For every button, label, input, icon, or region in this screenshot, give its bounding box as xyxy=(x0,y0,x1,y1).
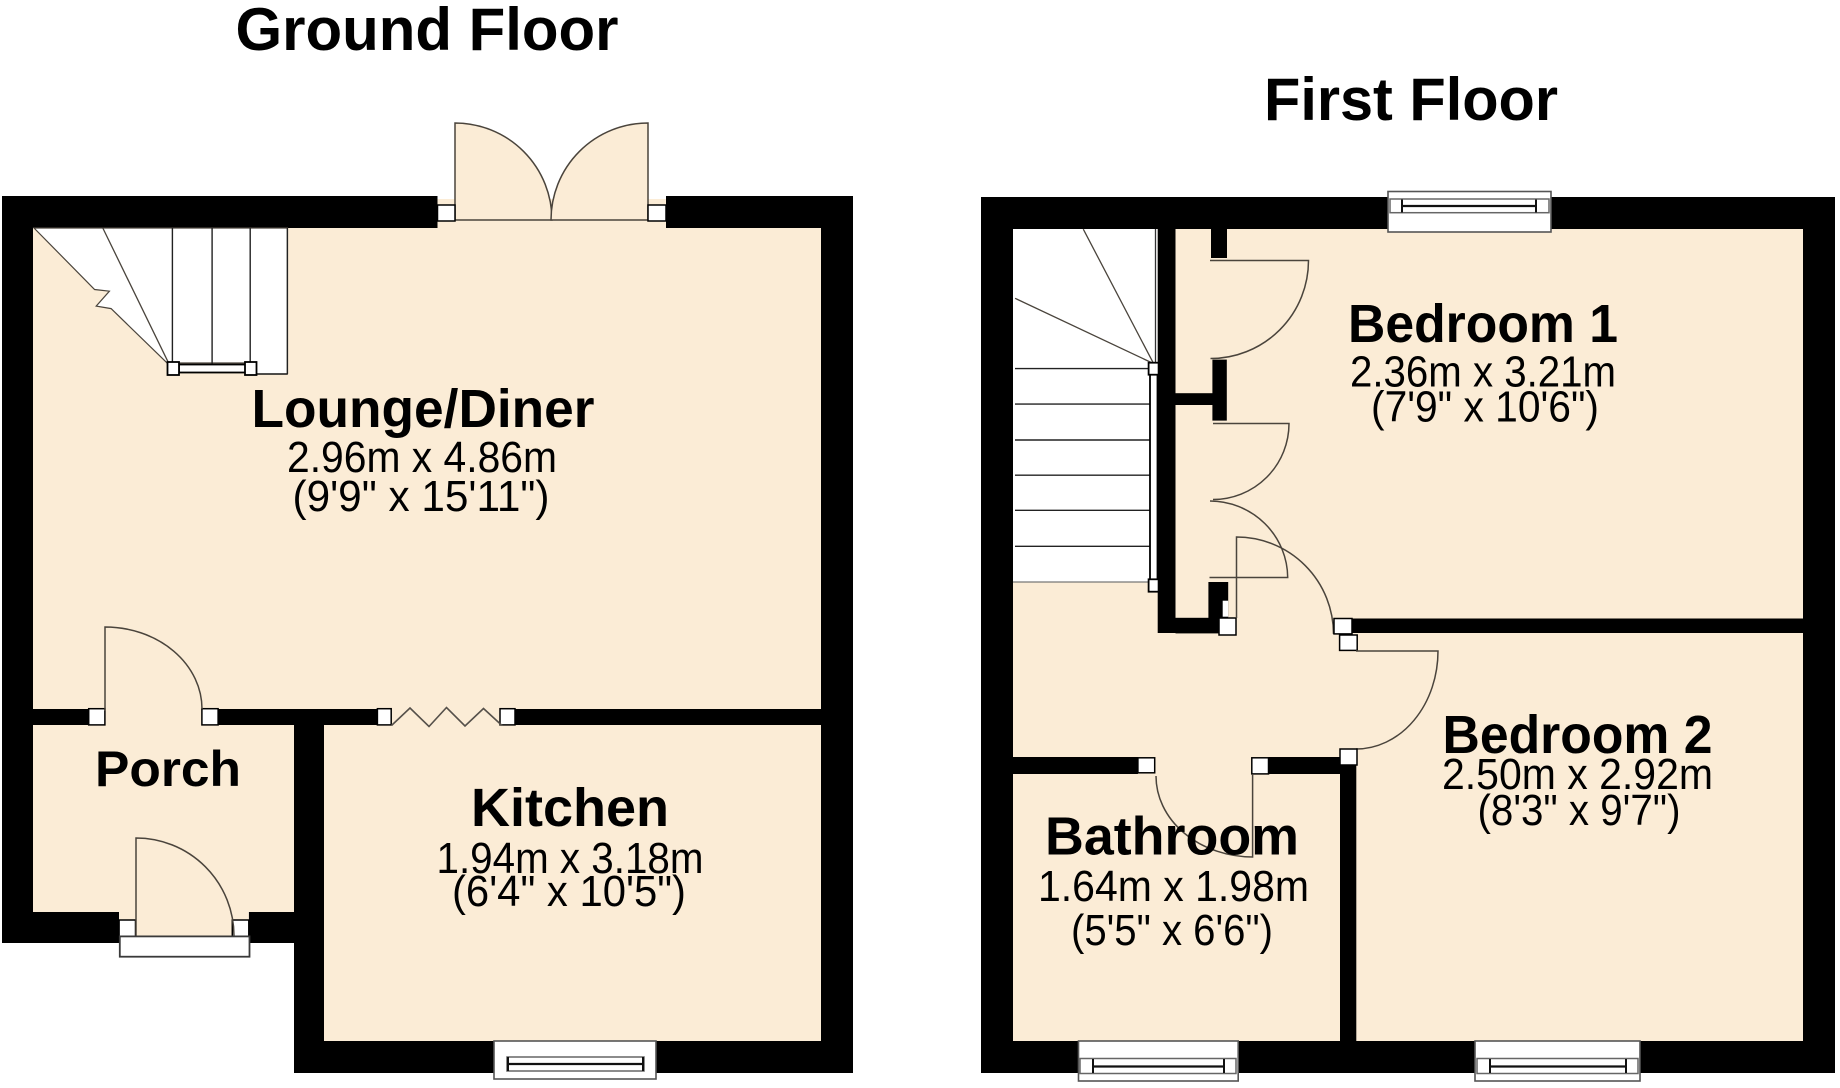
svg-text:Porch: Porch xyxy=(95,741,241,797)
svg-text:Lounge/Diner: Lounge/Diner xyxy=(252,379,595,439)
svg-text:(7'9" x 10'6"): (7'9" x 10'6") xyxy=(1371,383,1599,432)
svg-text:1.64m x 1.98m: 1.64m x 1.98m xyxy=(1038,862,1309,911)
svg-text:(6'4" x 10'5"): (6'4" x 10'5") xyxy=(452,867,686,916)
svg-text:Kitchen: Kitchen xyxy=(471,778,669,838)
svg-text:Bathroom: Bathroom xyxy=(1045,807,1299,867)
svg-text:First Floor: First Floor xyxy=(1264,66,1558,133)
svg-text:(8'3" x 9'7"): (8'3" x 9'7") xyxy=(1478,786,1681,835)
svg-text:Bedroom 1: Bedroom 1 xyxy=(1348,294,1618,354)
svg-text:(9'9" x 15'11"): (9'9" x 15'11") xyxy=(293,472,550,521)
svg-text:Ground Floor: Ground Floor xyxy=(236,0,619,63)
svg-text:(5'5" x 6'6"): (5'5" x 6'6") xyxy=(1071,906,1273,955)
